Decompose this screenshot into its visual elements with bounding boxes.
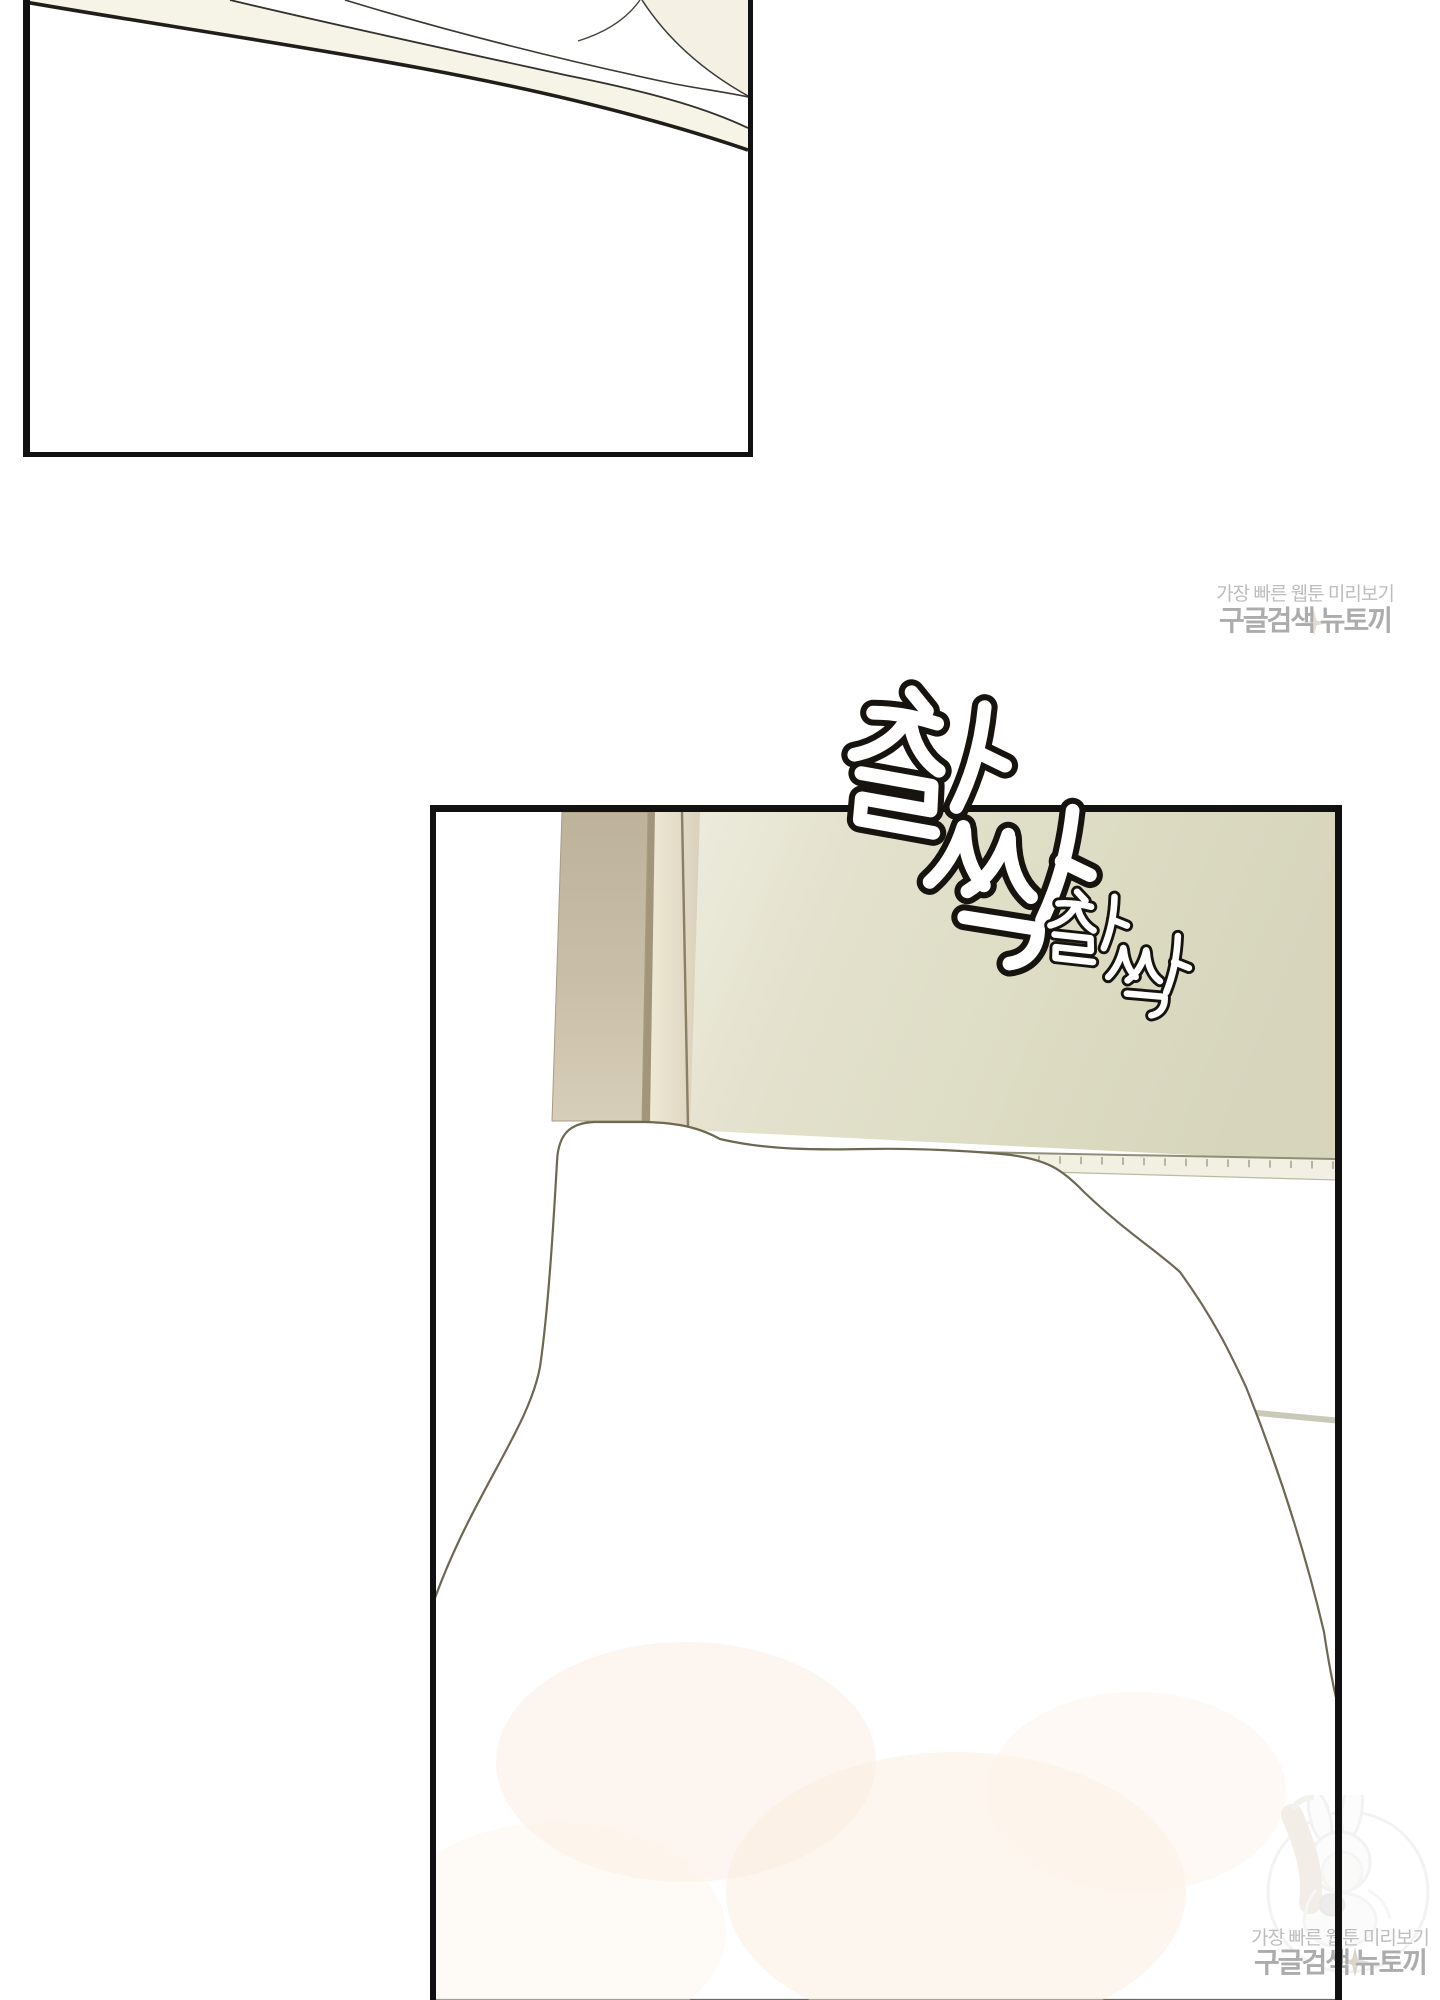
top-panel-lineart — [30, 0, 748, 452]
door-column — [552, 812, 648, 1121]
comic-panel-top — [23, 0, 753, 457]
cream-corner-fill — [642, 0, 748, 96]
panel-border-overlay — [1335, 1795, 1342, 2000]
sheet-curl-line — [578, 0, 640, 41]
watermark-sitename: 구글검색 뉴토끼 — [1205, 606, 1405, 636]
site-watermark-top: 가장 빠른 웹툰 미리보기 구글검색 뉴토끼 — [1205, 584, 1405, 636]
webtoon-page: { "page": { "type": "webtoon-episode-ima… — [0, 0, 1440, 2000]
watermark-tagline: 가장 빠른 웹툰 미리보기 — [1205, 584, 1405, 606]
sfx-slap-small: 찰싹 — [1020, 878, 1250, 1068]
